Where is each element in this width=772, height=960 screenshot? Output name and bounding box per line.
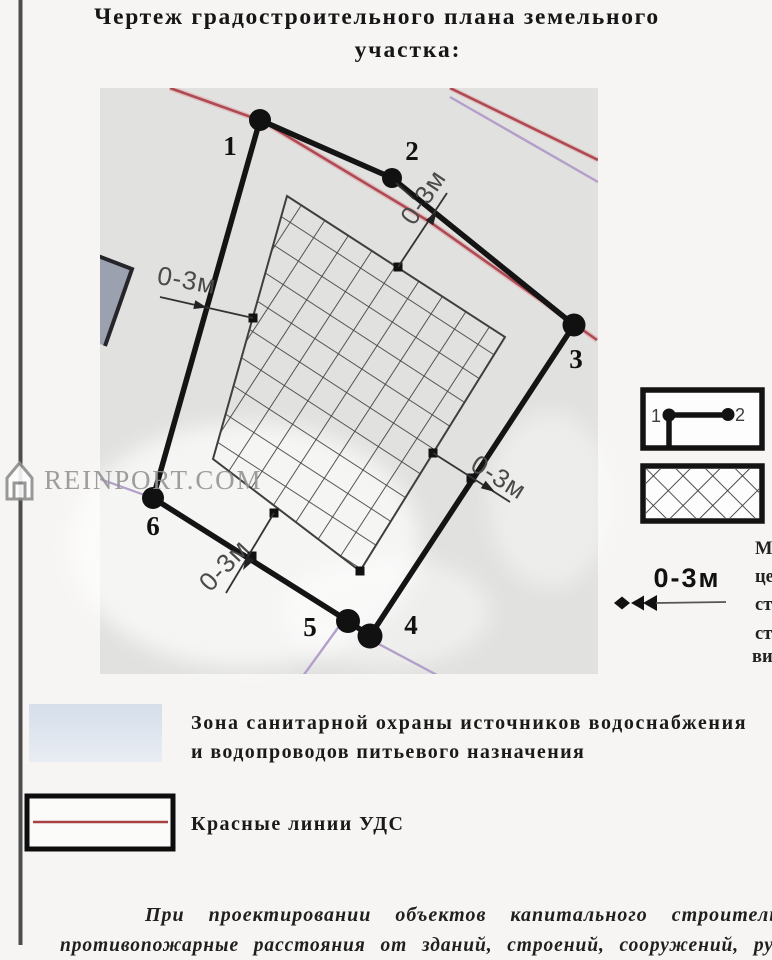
svg-text:6: 6 (146, 511, 160, 541)
svg-text:участка:: участка: (355, 37, 462, 63)
svg-text:стро: стро (755, 624, 772, 644)
svg-text:0-3м: 0-3м (654, 563, 721, 593)
svg-text:Зона санитарной охраны источни: Зона санитарной охраны источников водосн… (191, 712, 747, 734)
svg-text:2: 2 (735, 405, 745, 425)
svg-text:Мест: Мест (755, 539, 772, 559)
svg-text:2: 2 (405, 136, 419, 166)
svg-text:и водопроводов питьевого назна: и водопроводов питьевого назначения (191, 741, 585, 763)
svg-text:1: 1 (223, 131, 237, 161)
svg-text:4: 4 (404, 610, 418, 640)
svg-text:стро: стро (755, 595, 772, 615)
svg-text:REINPORT.COM: REINPORT.COM (44, 465, 262, 495)
svg-text:3: 3 (569, 344, 583, 374)
svg-text:5: 5 (303, 612, 317, 642)
svg-text:1: 1 (651, 406, 661, 426)
svg-text:Красные линии УДС: Красные линии УДС (191, 813, 404, 835)
svg-text:При проектировании объектов ка: При проектировании объектов капитального… (144, 904, 772, 926)
svg-text:вид: вид (752, 647, 772, 667)
svg-text:Чертеж градостроительного план: Чертеж градостроительного плана земельно… (94, 4, 660, 30)
svg-text:цел: цел (755, 567, 772, 587)
svg-text:противопожарные расстояния от: противопожарные расстояния от зданий, ст… (60, 935, 772, 956)
